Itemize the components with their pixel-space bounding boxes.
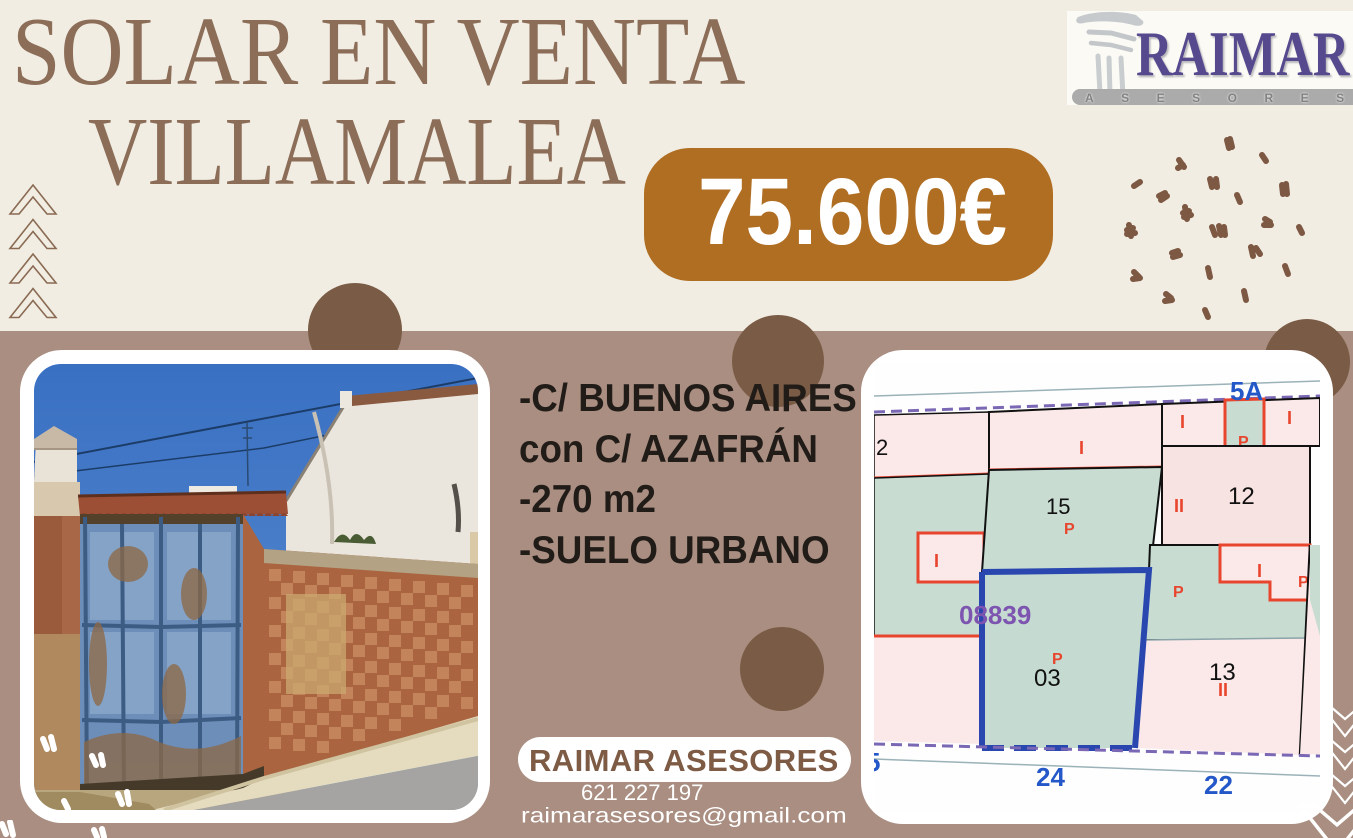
svg-text:II: II: [1174, 496, 1184, 516]
svg-text:I: I: [1079, 438, 1084, 458]
svg-text:15: 15: [1046, 494, 1070, 519]
svg-text:I: I: [1180, 412, 1185, 432]
svg-text:2: 2: [876, 435, 888, 460]
svg-text:22: 22: [1204, 770, 1233, 800]
svg-text:5A: 5A: [1230, 376, 1263, 406]
svg-text:03: 03: [1034, 665, 1061, 692]
svg-text:5: 5: [874, 747, 880, 777]
svg-text:P: P: [1173, 584, 1184, 601]
svg-text:I: I: [934, 551, 939, 571]
svg-text:P: P: [1052, 651, 1063, 668]
svg-text:I: I: [1257, 561, 1262, 581]
svg-text:II: II: [1218, 680, 1228, 700]
svg-text:24: 24: [1036, 762, 1065, 792]
svg-text:P: P: [1064, 521, 1075, 538]
svg-text:08839: 08839: [959, 600, 1031, 630]
svg-text:I: I: [1287, 408, 1292, 428]
svg-text:12: 12: [1228, 483, 1255, 510]
